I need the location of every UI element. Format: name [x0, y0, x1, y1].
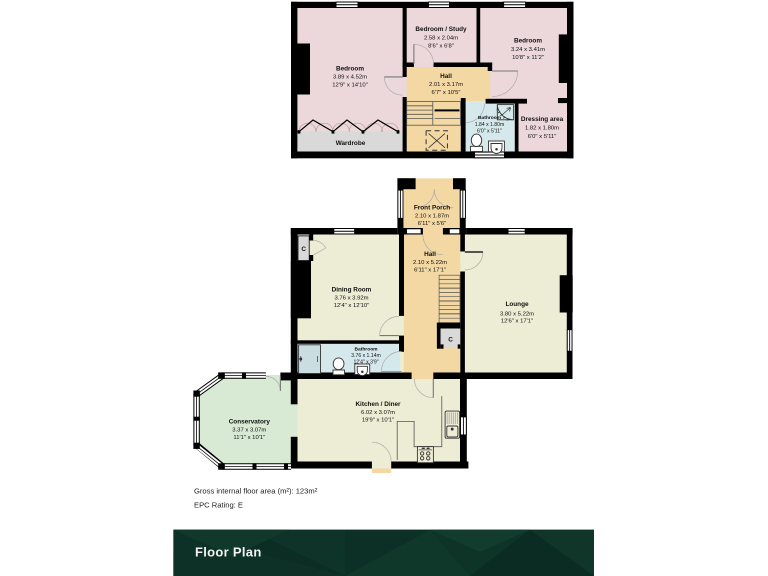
svg-text:6'7" x 10'5": 6'7" x 10'5" [431, 90, 460, 96]
svg-text:2.10 x 1.87m: 2.10 x 1.87m [415, 214, 449, 220]
svg-text:Floor Plan: Floor Plan [195, 545, 262, 560]
svg-text:3.80 x 5.22m: 3.80 x 5.22m [500, 312, 534, 318]
svg-text:Kitchen / Diner: Kitchen / Diner [355, 401, 401, 408]
svg-text:2.58 x 2.04m: 2.58 x 2.04m [424, 36, 458, 42]
svg-text:C: C [448, 337, 453, 344]
svg-text:11'1" x 10'1": 11'1" x 10'1" [233, 435, 265, 441]
svg-text:2.10 x 5.22m: 2.10 x 5.22m [413, 260, 447, 266]
svg-text:19'9" x 10'1": 19'9" x 10'1" [362, 418, 394, 424]
svg-text:Conservatory: Conservatory [229, 419, 271, 426]
svg-text:Bedroom: Bedroom [336, 66, 364, 73]
svg-text:6'0" x 5'11": 6'0" x 5'11" [477, 129, 502, 135]
svg-text:Bathroom: Bathroom [354, 347, 378, 353]
svg-text:Dressing area: Dressing area [521, 116, 564, 123]
svg-text:12'4" x 3'9": 12'4" x 3'9" [353, 360, 378, 366]
svg-text:3.24 x 3.41m: 3.24 x 3.41m [511, 47, 545, 53]
svg-text:12'6" x 17'1": 12'6" x 17'1" [501, 319, 533, 325]
svg-text:1.82 x 1.80m: 1.82 x 1.80m [525, 126, 559, 132]
svg-text:6'0" x 5'11": 6'0" x 5'11" [528, 134, 557, 140]
svg-text:C: C [301, 246, 306, 253]
svg-text:Hall: Hall [440, 73, 452, 80]
svg-text:10'8" x 11'2": 10'8" x 11'2" [512, 55, 544, 61]
svg-text:EPC Rating: E: EPC Rating: E [194, 501, 243, 510]
svg-text:6'11" x 5'6": 6'11" x 5'6" [418, 221, 447, 227]
svg-text:2.01 x 3.17m: 2.01 x 3.17m [429, 82, 463, 88]
svg-text:1.84 x 1.80m: 1.84 x 1.80m [475, 122, 504, 128]
svg-text:Bedroom / Study: Bedroom / Study [415, 26, 467, 33]
svg-text:Bedroom: Bedroom [514, 38, 542, 45]
svg-text:Wardrobe: Wardrobe [336, 140, 366, 147]
svg-text:Hall: Hall [424, 251, 436, 258]
svg-text:3.76 x 3.92m: 3.76 x 3.92m [334, 296, 368, 302]
svg-text:6'11" x 17'1": 6'11" x 17'1" [414, 268, 446, 274]
svg-text:3.76 x 1.14m: 3.76 x 1.14m [351, 353, 380, 359]
svg-text:12'4" x 12'10": 12'4" x 12'10" [334, 303, 370, 309]
svg-text:8'6" x 6'8": 8'6" x 6'8" [428, 44, 454, 50]
svg-text:6.02 x 3.07m: 6.02 x 3.07m [361, 410, 395, 416]
svg-text:3.37 x 3.07m: 3.37 x 3.07m [232, 428, 266, 434]
svg-text:Gross internal floor area (m²): Gross internal floor area (m²): 123m² [194, 487, 318, 496]
svg-text:12'9" x 14'10": 12'9" x 14'10" [332, 83, 368, 89]
svg-text:3.89 x 4.52m: 3.89 x 4.52m [333, 75, 367, 81]
svg-text:Lounge: Lounge [505, 301, 529, 308]
svg-text:Front Porch: Front Porch [414, 205, 450, 212]
svg-text:Bathroom: Bathroom [478, 115, 502, 121]
svg-text:Dining Room: Dining Room [332, 287, 372, 294]
